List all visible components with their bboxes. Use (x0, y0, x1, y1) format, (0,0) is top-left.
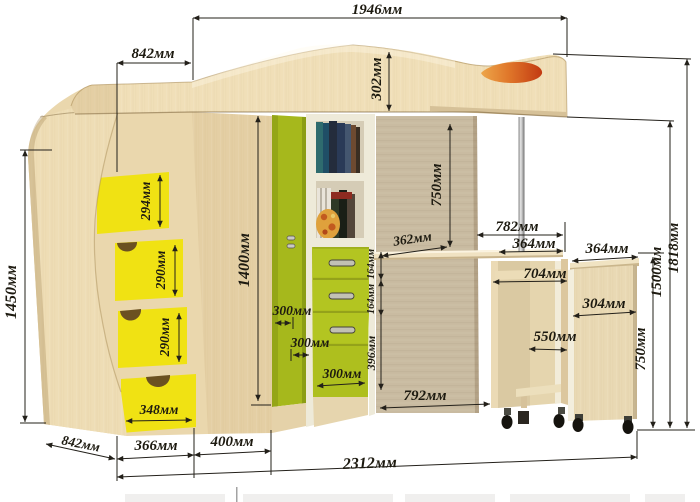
svg-text:290мм: 290мм (153, 251, 168, 291)
svg-text:300мм: 300мм (272, 303, 312, 318)
svg-text:396мм: 396мм (364, 336, 378, 371)
svg-text:400мм: 400мм (209, 434, 253, 450)
svg-text:1500мм: 1500мм (649, 247, 665, 298)
svg-text:792мм: 792мм (403, 388, 446, 404)
svg-text:1400мм: 1400мм (236, 233, 253, 287)
svg-text:750мм: 750мм (429, 163, 445, 206)
svg-text:1450мм: 1450мм (3, 265, 20, 319)
svg-text:164мм: 164мм (366, 249, 377, 279)
svg-text:164мм: 164мм (366, 284, 377, 314)
svg-text:348мм: 348мм (139, 402, 179, 417)
svg-text:302мм: 302мм (369, 57, 385, 101)
svg-text:1946мм: 1946мм (352, 2, 403, 18)
svg-text:366мм: 366мм (133, 438, 177, 454)
svg-text:364мм: 364мм (511, 236, 555, 252)
svg-text:704мм: 704мм (523, 266, 566, 282)
svg-text:750мм: 750мм (633, 327, 649, 370)
svg-text:290мм: 290мм (157, 318, 172, 358)
svg-text:300мм: 300мм (322, 366, 362, 381)
svg-text:2312мм: 2312мм (342, 454, 398, 473)
svg-text:300мм: 300мм (290, 335, 330, 350)
svg-text:550мм: 550мм (533, 329, 576, 345)
svg-text:294мм: 294мм (138, 182, 153, 222)
svg-text:782мм: 782мм (495, 219, 538, 235)
svg-text:304мм: 304мм (581, 296, 625, 312)
svg-text:842мм: 842мм (131, 46, 174, 62)
svg-text:364мм: 364мм (584, 241, 628, 257)
svg-text:1818мм: 1818мм (666, 223, 682, 274)
